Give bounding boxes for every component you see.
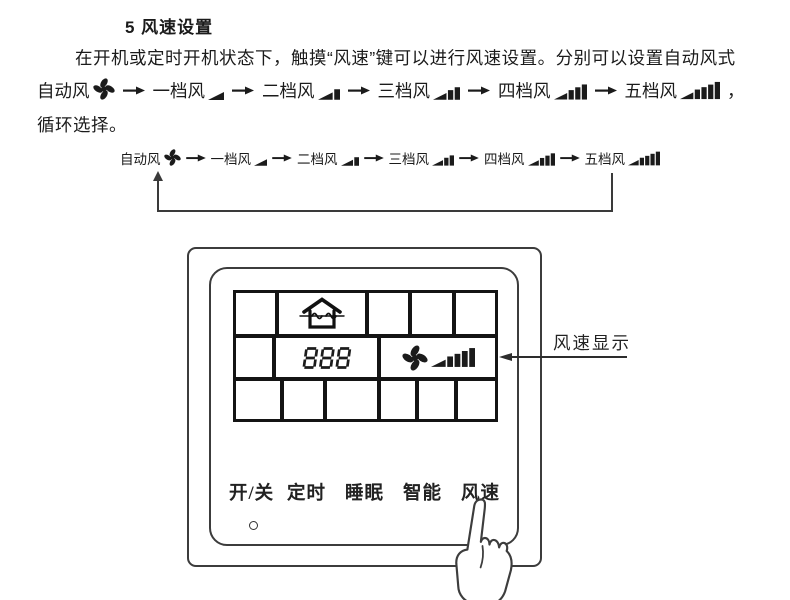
lcd-cell [284,381,323,419]
cycle-item-auto: 自动风 [120,148,181,168]
cycle-loop-arrowhead-icon [153,171,163,181]
arrow-right-icon [186,154,206,162]
cycle-loop-line-bottom [158,210,613,212]
fan-icon [164,149,181,166]
arrow-right-icon [467,86,491,95]
flow-label: 五档风 [625,78,678,103]
intro-line-2: 循环选择。 [37,112,127,137]
lcd-display [233,290,498,422]
cycle-item-speed-2: 二档风 [297,148,359,168]
sleep-button[interactable]: 睡眠 [345,479,384,505]
speed-bars-4-icon [528,153,555,166]
fan-icon [402,345,428,371]
flow-item-speed-3: 三档风 [378,78,461,103]
lcd-row-middle [236,338,495,377]
lcd-cell [419,381,454,419]
lcd-cell [412,293,451,334]
lcd-cell [236,338,272,377]
flow-label: 三档风 [378,78,431,103]
fan-icon [93,78,115,100]
lcd-cell [327,381,377,419]
callout-label: 风速显示 [553,330,631,355]
arrow-right-icon [231,86,255,95]
arrow-right-icon [594,86,618,95]
led-indicator [249,521,258,530]
speed-cycle-diagram: 自动风 一档风 二档风 三档风 四档风 五档风 [120,147,660,169]
flow-item-speed-5: 五档风 [625,78,721,103]
cycle-loop-line-left [157,180,159,212]
speed-bars-1-icon [208,92,224,100]
lcd-cell-temperature [276,338,377,377]
speed-bars-2-icon [341,157,359,166]
cycle-label: 三档风 [389,148,430,168]
lcd-cell-fan-speed [381,338,495,377]
flow-item-auto: 自动风 [37,78,115,103]
lcd-cell [369,293,408,334]
speed-bars-5-icon [431,348,475,367]
cycle-label: 五档风 [585,148,626,168]
section-heading: 5 风速设置 [125,13,213,38]
cycle-label: 四档风 [484,148,525,168]
speed-bars-2-icon [318,89,340,100]
arrow-right-icon [272,154,292,162]
cycle-item-speed-1: 一档风 [211,148,268,168]
lcd-cell [381,381,415,419]
flow-item-speed-4: 四档风 [498,78,587,103]
timer-button[interactable]: 定时 [287,479,326,505]
speed-bars-5-icon [628,151,660,166]
lcd-cell [456,293,495,334]
lcd-row-bottom [236,381,495,419]
flow-label: 四档风 [498,78,551,103]
flow-item-speed-2: 二档风 [262,78,340,103]
cycle-item-speed-4: 四档风 [484,148,555,168]
speed-bars-4-icon [554,84,587,100]
pointing-hand-icon [431,492,536,600]
callout-arrowhead-icon [499,353,512,361]
cycle-loop-line-right [611,173,613,212]
cycle-item-speed-5: 五档风 [585,148,661,168]
manual-page: 5 风速设置 在开机或定时开机状态下，触摸“风速”键可以进行风速设置。分别可以设… [0,0,790,600]
speed-bars-1-icon [254,159,267,166]
trailing-comma: ， [727,78,745,103]
speed-bars-3-icon [433,87,460,100]
lcd-cell [458,381,495,419]
arrow-right-icon [122,86,146,95]
intro-line-1: 在开机或定时开机状态下，触摸“风速”键可以进行风速设置。分别可以设置自动风式 [75,45,736,70]
cycle-label: 一档风 [211,148,252,168]
lcd-cell-room [279,293,364,334]
arrow-right-icon [560,154,580,162]
power-button[interactable]: 开/关 [229,479,274,505]
speed-flow-inline: 自动风 一档风 二档风 三档风 四档风 五档风 ， [37,74,745,106]
flow-label: 一档风 [153,78,206,103]
speed-bars-5-icon [680,81,720,100]
callout-arrow-line [511,356,627,358]
flow-item-speed-1: 一档风 [153,78,225,103]
lcd-cell [236,293,275,334]
cycle-label: 自动风 [120,148,161,168]
seven-segment-digits [301,346,353,370]
arrow-right-icon [459,154,479,162]
cycle-item-speed-3: 三档风 [389,148,455,168]
arrow-right-icon [347,86,371,95]
cycle-label: 二档风 [297,148,338,168]
house-airflow-icon [299,296,345,332]
flow-label: 二档风 [262,78,315,103]
speed-bars-3-icon [432,155,454,166]
arrow-right-icon [364,154,384,162]
smart-button[interactable]: 智能 [403,479,442,505]
lcd-row-top [236,293,495,334]
lcd-cell [236,381,280,419]
flow-label: 自动风 [37,78,90,103]
